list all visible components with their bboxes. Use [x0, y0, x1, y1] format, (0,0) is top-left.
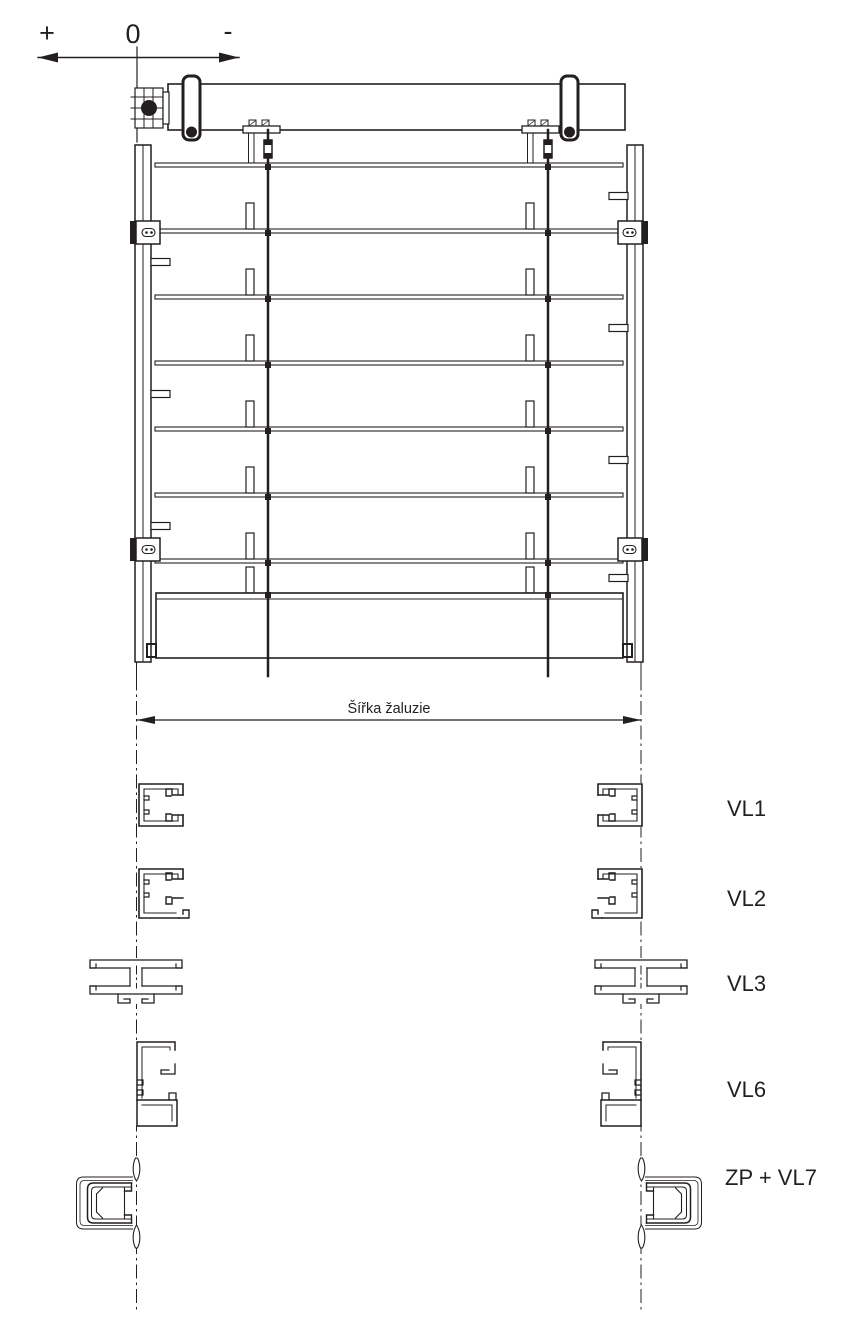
- ladder-tab: [246, 533, 254, 559]
- slat: [155, 559, 623, 563]
- slat: [155, 295, 623, 299]
- lift-tape-right: [544, 130, 552, 676]
- ladder-tab: [526, 533, 534, 559]
- slat: [155, 229, 623, 233]
- profile-label-vl3: VL3: [727, 971, 766, 996]
- side-bracket: [130, 221, 160, 244]
- dimension-label: Šířka žaluzie: [347, 700, 430, 717]
- ladder-tab: [526, 467, 534, 493]
- ladder-tab: [526, 401, 534, 427]
- axis-minus-label: -: [224, 16, 233, 46]
- rail-peg: [609, 193, 628, 200]
- lift-tape-left: [264, 130, 272, 676]
- axis-arrowhead-left-icon: [38, 53, 58, 63]
- rail-peg: [609, 325, 628, 332]
- motor-head: [131, 88, 169, 128]
- profile-label-zp-vl7: ZP + VL7: [725, 1165, 817, 1190]
- profile-zp-vl7-left: [75, 1158, 140, 1248]
- rail-peg: [151, 259, 170, 266]
- side-bracket: [130, 538, 160, 561]
- slat: [155, 493, 623, 497]
- bottom-rail: [156, 593, 623, 658]
- rail-peg: [151, 523, 170, 530]
- profile-vl2-left: [138, 868, 189, 920]
- tape-hanger-left: [243, 120, 280, 164]
- rail-peg: [609, 457, 628, 464]
- profile-vl6-left: [133, 1040, 181, 1126]
- rail-peg: [151, 391, 170, 398]
- side-bracket: [618, 538, 648, 561]
- axis-zero-label: 0: [125, 19, 140, 49]
- ladder-tab: [526, 203, 534, 229]
- winding-tube: [168, 84, 625, 130]
- tape-hanger-right: [522, 120, 559, 164]
- mounting-ring-left: [183, 76, 200, 140]
- slat: [155, 163, 623, 167]
- ladder-tab: [526, 269, 534, 295]
- profile-label-vl1: VL1: [727, 796, 766, 821]
- drawing-canvas: + 0 -: [0, 0, 849, 1323]
- rail-peg: [609, 575, 628, 582]
- profile-vl2-right: [592, 868, 643, 920]
- slat: [155, 361, 623, 365]
- profile-zp-vl7-right: [638, 1158, 703, 1248]
- ladder-tab: [246, 567, 254, 593]
- profile-label-vl6: VL6: [727, 1077, 766, 1102]
- dimension-arrowhead-right-icon: [623, 716, 641, 724]
- side-brackets: [130, 221, 648, 561]
- width-dimension: Šířka žaluzie: [137, 662, 642, 1312]
- axis-plus-label: +: [39, 18, 55, 48]
- profile-vl6-right: [597, 1040, 645, 1126]
- slat: [155, 427, 623, 431]
- blind-assembly: [130, 130, 648, 676]
- mounting-ring-right: [561, 76, 578, 140]
- profile-labels: VL1 VL2 VL3 VL6 ZP + VL7: [725, 796, 817, 1190]
- dimension-arrowhead-left-icon: [137, 716, 155, 724]
- ladder-tabs: [246, 203, 534, 593]
- axis-arrowhead-right-icon: [219, 53, 239, 63]
- profile-vl1-right: [598, 783, 643, 827]
- rail-pegs: [151, 193, 628, 582]
- profile-sections: [75, 783, 704, 1248]
- motor-shaft-icon: [141, 100, 157, 116]
- profile-label-vl2: VL2: [727, 886, 766, 911]
- ladder-tab: [526, 335, 534, 361]
- ladder-tab: [246, 335, 254, 361]
- ladder-tab: [246, 467, 254, 493]
- profile-vl3-right: [593, 958, 689, 1004]
- ladder-tab: [246, 269, 254, 295]
- side-bracket: [618, 221, 648, 244]
- slats: [155, 163, 623, 563]
- profile-vl3-left: [88, 958, 184, 1004]
- profile-vl1-left: [138, 783, 183, 827]
- ladder-tab: [246, 401, 254, 427]
- ladder-tab: [246, 203, 254, 229]
- ladder-tab: [526, 567, 534, 593]
